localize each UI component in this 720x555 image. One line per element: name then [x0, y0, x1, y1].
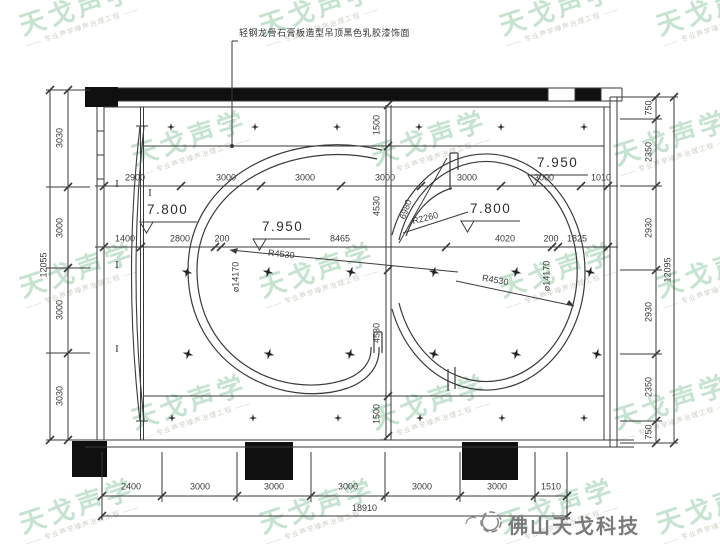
ceiling-light-icon — [333, 123, 341, 131]
grid-axis-marker: I — [148, 187, 152, 199]
grid-axis-marker: I — [115, 178, 119, 190]
elevation-marker: 7.800 — [147, 203, 188, 217]
company-logo-text: 佛山天戈科技 — [508, 510, 640, 539]
ceiling-light-icon — [180, 265, 193, 278]
ceiling-light-icon — [497, 123, 505, 131]
ceiling-light-icon — [498, 414, 506, 422]
ceiling-light-icon — [344, 265, 357, 278]
diameter-label: ⌀14170 — [232, 262, 241, 292]
dim-label: 2930 — [645, 302, 654, 322]
ceiling-light-icon — [168, 414, 176, 422]
dim-label: 3030 — [56, 128, 65, 148]
ceiling-light-icon — [343, 347, 356, 360]
dim-label: 3000 — [190, 483, 210, 492]
elevation-marker: 7.800 — [470, 202, 511, 216]
dim-label: 3030 — [56, 386, 65, 406]
dim-label: 2400 — [121, 483, 141, 492]
dim-label: 1500 — [373, 404, 382, 424]
ceiling-light-icon — [509, 265, 522, 278]
dim-label: 1825 — [567, 235, 587, 244]
ceiling-light-icon — [580, 123, 588, 131]
dim-label: 3000 — [457, 174, 477, 183]
dim-label: 3000 — [264, 483, 284, 492]
ceiling-light-icon — [427, 347, 440, 360]
dim-label: 2930 — [645, 218, 654, 238]
ceiling-light-icon — [415, 123, 423, 131]
ceiling-light-icon — [251, 123, 259, 131]
dim-label: 1510 — [541, 483, 561, 492]
dim-label: 3000 — [216, 174, 236, 183]
elevation-marker: 7.950 — [262, 220, 303, 234]
dim-label: 3000 — [375, 174, 395, 183]
ceiling-light-icon — [427, 265, 440, 278]
dim-label: 1010 — [591, 174, 611, 183]
grid-axis-marker: I — [115, 343, 119, 355]
dim-label: 3000 — [487, 483, 507, 492]
dim-label: 750 — [645, 424, 654, 439]
dim-label: 3000 — [412, 483, 432, 492]
dim-label: 2350 — [645, 377, 654, 397]
elevation-marker: 7.950 — [537, 156, 578, 170]
dim-total-right: 12095 — [664, 257, 673, 282]
dim-label: 3000 — [295, 174, 315, 183]
cad-linework: IIII — [0, 0, 720, 555]
ceiling-light-icon — [181, 347, 194, 360]
ceiling-light-icon — [249, 414, 257, 422]
ceiling-callout-text: 轻钢龙骨石膏板造型吊顶黑色乳胶漆饰面 — [239, 26, 410, 39]
ceiling-plan-drawing: 天戈声学—— 专业声学噪声治理工程 ——天戈声学—— 专业声学噪声治理工程 ——… — [0, 0, 720, 555]
dim-total-left: 12055 — [40, 252, 49, 277]
dim-label: 2350 — [645, 142, 654, 162]
ceiling-light-icon — [509, 347, 522, 360]
diameter-label: ⌀14170 — [543, 261, 552, 291]
ceiling-light-icon — [262, 347, 275, 360]
ceiling-light-icon — [416, 414, 424, 422]
dim-label: 3000 — [56, 300, 65, 320]
ceiling-light-icon — [590, 347, 603, 360]
dim-label: 3000 — [56, 218, 65, 238]
dim-label: 8465 — [330, 235, 350, 244]
dim-label: 4530 — [373, 323, 382, 343]
dim-label: 4020 — [495, 235, 515, 244]
dim-total-bottom: 18910 — [352, 504, 377, 513]
ceiling-light-icon — [580, 414, 588, 422]
dim-label: 1500 — [373, 115, 382, 135]
dim-label: 1400 — [115, 235, 135, 244]
ceiling-light-icon — [261, 265, 274, 278]
dim-label: 2800 — [170, 235, 190, 244]
dim-label: 750 — [645, 100, 654, 115]
dim-label: 200 — [214, 235, 229, 244]
dim-label: 200 — [543, 235, 558, 244]
dim-label: 3000 — [534, 174, 554, 183]
dim-label: 2900 — [125, 174, 145, 183]
dim-label: 3000 — [338, 483, 358, 492]
ceiling-light-icon — [334, 414, 342, 422]
dim-label: 4530 — [373, 196, 382, 216]
grid-axis-marker: I — [115, 259, 119, 271]
ceiling-light-icon — [167, 123, 175, 131]
